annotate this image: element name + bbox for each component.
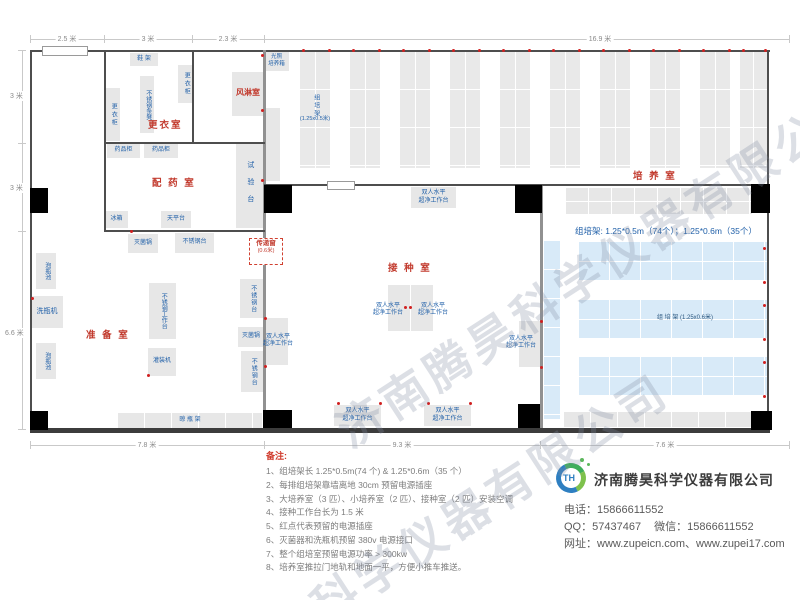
dim-label-top-1: 2.5 米 bbox=[56, 34, 79, 44]
dim-tick bbox=[264, 35, 265, 43]
dim-tick bbox=[30, 441, 31, 449]
power-socket-dot bbox=[261, 54, 264, 57]
soak-pool-label: 泡瓶池 bbox=[42, 262, 50, 280]
dim-tick bbox=[789, 35, 790, 43]
dim-label-bottom-1: 7.8 米 bbox=[136, 440, 159, 450]
logo-spark bbox=[580, 458, 584, 462]
dim-tick bbox=[789, 441, 790, 449]
culture-rack-blue bbox=[579, 242, 767, 280]
power-socket-dot bbox=[628, 49, 631, 52]
wardrobe-right: 更衣柜 bbox=[178, 65, 193, 103]
logo-spark bbox=[587, 463, 590, 466]
column bbox=[518, 404, 540, 428]
bottle-washer-label: 洗瓶机 bbox=[37, 308, 58, 317]
wall-changing-airshower bbox=[192, 50, 194, 143]
culture-rack-gray-top bbox=[566, 188, 752, 214]
sterilizer-label: 灭菌锅 bbox=[134, 240, 152, 248]
power-socket-dot bbox=[763, 247, 766, 250]
power-socket-dot bbox=[264, 365, 267, 368]
light-incubator-label: 光照 培养箱 bbox=[268, 54, 285, 68]
test-bench: 试验台 bbox=[236, 144, 263, 228]
drying-rack-label: 晾 瓶 架 bbox=[179, 417, 200, 425]
clean-bench-label: 双人水平 超净工作台 bbox=[373, 303, 403, 318]
note-item-3: 3、大培养室（3 匹）、小培养室（2 匹）、接种室（2 匹）安装空调 bbox=[266, 493, 558, 507]
rack-v-size-label: (1.25x0.5米) bbox=[300, 116, 330, 123]
qq-wechat-line: QQ：57437467 微信：15866611552 bbox=[564, 518, 754, 534]
phone-value: 15866611552 bbox=[597, 504, 663, 516]
power-socket-dot bbox=[502, 49, 505, 52]
power-socket-dot bbox=[552, 49, 555, 52]
dim-tick bbox=[30, 35, 31, 43]
power-socket-dot bbox=[264, 317, 267, 320]
power-socket-dot bbox=[352, 49, 355, 52]
room-label-changing: 更衣室 bbox=[148, 117, 183, 131]
power-socket-dot bbox=[728, 49, 731, 52]
wall-outer-right bbox=[767, 50, 769, 430]
column bbox=[515, 185, 542, 213]
note-item-6: 6、灭菌器和洗瓶机预留 380v 电源接口 bbox=[266, 534, 558, 548]
company-logo: TH bbox=[554, 461, 590, 497]
clean-bench-right-label-wrap: 双人水平 超净工作台 bbox=[501, 332, 541, 354]
wall-changing-dispensing bbox=[104, 142, 265, 144]
light-incubator: 光照 培养箱 bbox=[264, 50, 289, 71]
filling-machine: 灌装机 bbox=[148, 348, 176, 376]
steel-table-label: 不锈钢台 bbox=[249, 358, 257, 386]
note-item-1: 1、组培架长 1.25*0.5m(74 个) & 1.25*0.6m（35 个） bbox=[266, 465, 558, 479]
balance-table-label: 天平台 bbox=[167, 216, 185, 224]
clean-bench-bottom-1: 双人水平 超净工作台 bbox=[334, 405, 381, 426]
power-socket-dot bbox=[763, 338, 766, 341]
steel-table-wall-2: 不锈钢台 bbox=[241, 351, 264, 392]
rack-summary-note: 组培架: 1.25*0.5m（74个）；1.25*0.6m（35个） bbox=[575, 226, 757, 237]
power-socket-dot bbox=[302, 49, 305, 52]
culture-rack bbox=[400, 52, 430, 168]
power-socket-dot bbox=[427, 402, 430, 405]
culture-rack bbox=[350, 52, 380, 168]
power-socket-dot bbox=[742, 49, 745, 52]
column bbox=[30, 188, 48, 213]
power-socket-dot bbox=[379, 402, 382, 405]
wall-corridor bbox=[104, 50, 106, 232]
power-socket-dot bbox=[763, 304, 766, 307]
dimension-line-left bbox=[22, 50, 23, 430]
power-socket-dot bbox=[764, 49, 767, 52]
power-socket-dot bbox=[428, 49, 431, 52]
column bbox=[751, 184, 770, 213]
medicine-cabinet-label: 药品柜 bbox=[114, 147, 132, 155]
power-socket-dot bbox=[578, 49, 581, 52]
steel-table-label: 不锈钢台 bbox=[182, 239, 206, 247]
dim-tick bbox=[104, 35, 105, 43]
fridge: 冰箱 bbox=[105, 211, 128, 228]
dim-label-left-2: 3 米 bbox=[8, 183, 25, 193]
steel-table-label: 不锈钢台 bbox=[248, 285, 256, 313]
wall-outer-left bbox=[30, 50, 32, 430]
rack-h-label-wrap: 组 培 架 (1.25x0.6米) bbox=[630, 313, 740, 325]
floor-plan-page: 2.5 米 3 米 2.3 米 16.9 米 3 米 3 米 6.6 米 7.8… bbox=[0, 0, 800, 600]
dim-tick bbox=[18, 50, 26, 51]
rack-h-label: 组 培 架 (1.25x0.6米) bbox=[657, 315, 713, 323]
soak-pool-label: 泡瓶池 bbox=[42, 352, 50, 370]
culture-rack bbox=[500, 52, 530, 168]
culture-rack bbox=[450, 52, 480, 168]
soak-pool-2: 泡瓶池 bbox=[36, 343, 56, 379]
wall-dispensing-prep bbox=[104, 230, 265, 232]
shoe-rack: 鞋 架 bbox=[130, 53, 158, 66]
power-socket-dot bbox=[702, 49, 705, 52]
wall-outer-top bbox=[30, 50, 770, 52]
website-line: 网址：www.zupeicn.com、www.zupei17.com bbox=[564, 535, 785, 551]
power-socket-dot bbox=[328, 49, 331, 52]
power-socket-dot bbox=[409, 306, 412, 309]
balance-table: 天平台 bbox=[161, 211, 191, 228]
dim-label-top-2: 3 米 bbox=[140, 34, 157, 44]
power-socket-dot bbox=[378, 49, 381, 52]
clean-bench-label: 双人水平 超净工作台 bbox=[342, 408, 372, 423]
power-socket-dot bbox=[678, 49, 681, 52]
medicine-cabinet-label: 药品柜 bbox=[152, 147, 170, 155]
culture-rack bbox=[700, 52, 730, 168]
fridge-label: 冰箱 bbox=[110, 216, 122, 224]
room-label-dispensing: 配 药 室 bbox=[152, 175, 196, 189]
note-item-8: 8、培养室推拉门地轨和地面一平，方便小推车推送。 bbox=[266, 561, 558, 575]
wall-outer-bottom bbox=[30, 428, 770, 433]
culture-rack-gray-bottom bbox=[564, 412, 751, 427]
power-socket-dot bbox=[528, 49, 531, 52]
wardrobe-label: 更衣柜 bbox=[109, 103, 117, 127]
power-socket-dot bbox=[404, 306, 407, 309]
power-socket-dot bbox=[652, 49, 655, 52]
column bbox=[751, 411, 772, 430]
steel-workbench-label: 不锈钢工作台 bbox=[159, 293, 167, 329]
dim-label-left-1: 3 米 bbox=[8, 91, 25, 101]
note-item-4: 4、接种工作台长为 1.5 米 bbox=[266, 506, 558, 520]
power-socket-dot bbox=[540, 320, 543, 323]
wardrobe-label: 更衣柜 bbox=[182, 72, 190, 96]
clean-bench-label: 双人水平 超净工作台 bbox=[418, 190, 448, 205]
drying-rack-label-wrap: 晾 瓶 架 bbox=[118, 413, 262, 428]
phone-label: 电话： bbox=[564, 504, 597, 516]
pass-window-label: 传递窗 bbox=[256, 240, 276, 247]
clean-bench-bottom-2: 双人水平 超净工作台 bbox=[424, 405, 471, 426]
door-entrance bbox=[42, 46, 88, 56]
phone-line: 电话：15866611552 bbox=[564, 501, 663, 517]
power-socket-dot bbox=[602, 49, 605, 52]
wardrobe-left: 更衣柜 bbox=[105, 88, 120, 141]
soak-pool-1: 泡瓶池 bbox=[36, 253, 56, 289]
wall-shelf bbox=[266, 108, 280, 181]
dim-tick bbox=[18, 231, 26, 232]
column bbox=[264, 185, 292, 213]
power-socket-dot bbox=[452, 49, 455, 52]
power-socket-dot bbox=[261, 109, 264, 112]
culture-rack bbox=[550, 52, 580, 168]
dim-label-bottom-3: 7.6 米 bbox=[654, 440, 677, 450]
dim-tick bbox=[540, 441, 541, 449]
power-socket-dot bbox=[763, 361, 766, 364]
room-label-air-shower: 风淋室 bbox=[236, 87, 260, 98]
steel-bench-label: 不锈钢条凳 bbox=[143, 90, 151, 120]
power-socket-dot bbox=[31, 297, 34, 300]
steel-table-wall-1: 不锈钢台 bbox=[240, 279, 264, 318]
dim-tick bbox=[18, 429, 26, 430]
dim-tick bbox=[18, 143, 26, 144]
power-socket-dot bbox=[261, 179, 264, 182]
bottle-washer: 洗瓶机 bbox=[31, 296, 63, 328]
column bbox=[263, 410, 292, 428]
note-item-5: 5、红点代表预留的电源插座 bbox=[266, 520, 558, 534]
medicine-cabinet-1: 药品柜 bbox=[107, 143, 140, 158]
power-socket-dot bbox=[337, 402, 340, 405]
note-item-2: 2、每排组培架靠墙离地 30cm 预留电源插座 bbox=[266, 479, 558, 493]
wechat-label: 微信： bbox=[654, 521, 687, 533]
room-label-culture: 培 养 室 bbox=[633, 168, 677, 182]
power-socket-dot bbox=[763, 395, 766, 398]
power-socket-dot bbox=[147, 374, 150, 377]
notes-title: 备注: bbox=[266, 449, 558, 462]
power-socket-dot bbox=[478, 49, 481, 52]
clean-bench-left-label-wrap: 双人水平 超净工作台 bbox=[258, 330, 298, 352]
sterilizer-top: 灭菌锅 bbox=[128, 234, 158, 253]
dim-tick bbox=[264, 441, 265, 449]
clean-bench-label: 双人水平 超净工作台 bbox=[506, 336, 536, 351]
shoe-rack-label: 鞋 架 bbox=[137, 56, 151, 64]
qq-value: 57437467 bbox=[592, 521, 641, 533]
room-label-preparation: 准 备 室 bbox=[86, 327, 130, 341]
logo-monogram: TH bbox=[563, 473, 575, 483]
medicine-cabinet-2: 药品柜 bbox=[144, 143, 178, 158]
culture-rack bbox=[740, 52, 767, 168]
culture-rack bbox=[650, 52, 680, 168]
note-item-7: 7、整个组培室预留电源功率 > 300kw bbox=[266, 548, 558, 562]
company-name: 济南腾昊科学仪器有限公司 bbox=[594, 470, 774, 490]
steel-workbench: 不锈钢工作台 bbox=[149, 283, 176, 339]
website-value: www.zupeicn.com、www.zupei17.com bbox=[597, 538, 785, 550]
room-label-inoculation: 接 种 室 bbox=[388, 260, 432, 274]
clean-bench-c2-label-wrap: 双人水平 超净工作台 bbox=[413, 299, 453, 321]
filling-machine-label: 灌装机 bbox=[153, 358, 171, 366]
steel-table-top: 不锈钢台 bbox=[175, 233, 214, 253]
column bbox=[30, 411, 48, 430]
culture-rack-blue bbox=[579, 357, 767, 395]
rack-v-size-wrap: (1.25x0.5米) bbox=[292, 114, 338, 124]
power-socket-dot bbox=[540, 366, 543, 369]
dim-tick bbox=[192, 35, 193, 43]
dim-label-left-3: 6.6 米 bbox=[3, 328, 26, 338]
clean-bench-label: 双人水平 超净工作台 bbox=[263, 334, 293, 349]
culture-rack bbox=[600, 52, 630, 168]
notes-block: 备注: 1、组培架长 1.25*0.5m(74 个) & 1.25*0.6m（3… bbox=[266, 449, 558, 575]
clean-bench-c1-label-wrap: 双人水平 超净工作台 bbox=[368, 299, 408, 321]
test-bench-label: 试验台 bbox=[245, 161, 254, 212]
wall-inoculation-culture2 bbox=[540, 185, 543, 428]
qq-label: QQ： bbox=[564, 521, 592, 533]
power-socket-dot bbox=[130, 230, 133, 233]
power-socket-dot bbox=[763, 281, 766, 284]
dim-label-top-3: 2.3 米 bbox=[217, 34, 240, 44]
pass-window-size: (0.6米) bbox=[250, 248, 282, 255]
wechat-value: 15866611552 bbox=[687, 521, 753, 533]
power-socket-dot bbox=[469, 402, 472, 405]
clean-bench-top: 双人水平 超净工作台 bbox=[411, 187, 456, 208]
clean-bench-label: 双人水平 超净工作台 bbox=[432, 408, 462, 423]
culture-rack-blue-vertical bbox=[544, 241, 560, 419]
clean-bench-label: 双人水平 超净工作台 bbox=[418, 303, 448, 318]
power-socket-dot bbox=[402, 49, 405, 52]
door-culture-room bbox=[327, 181, 355, 190]
website-label: 网址： bbox=[564, 538, 597, 550]
dim-label-top-4: 16.9 米 bbox=[587, 34, 614, 44]
pass-window: 传递窗 (0.6米) bbox=[249, 238, 283, 265]
